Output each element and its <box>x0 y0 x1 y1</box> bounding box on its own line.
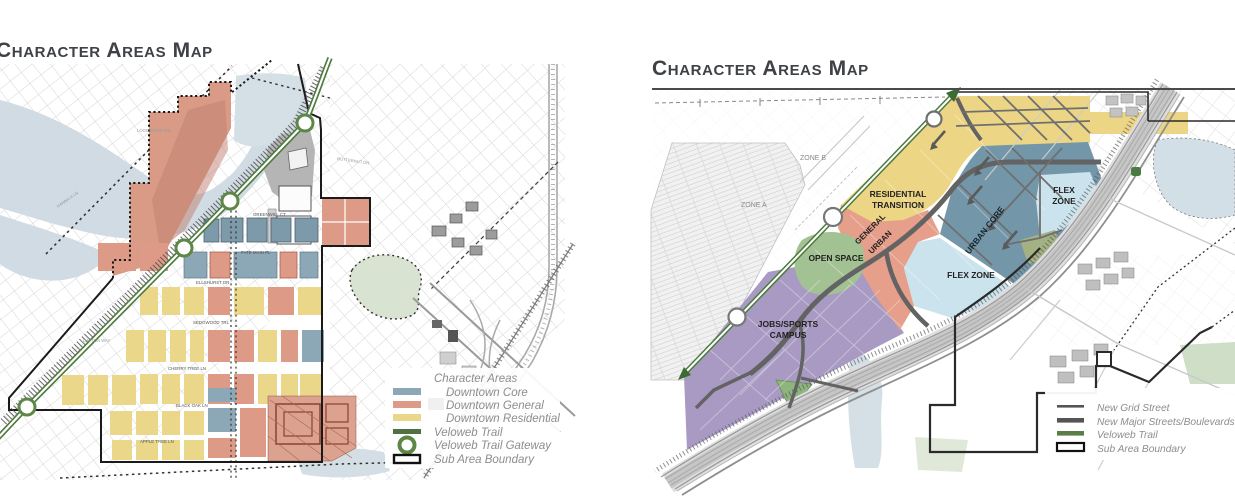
svg-text:CHERRY TREE LN: CHERRY TREE LN <box>168 366 206 371</box>
svg-text:FLEX: FLEX <box>1053 185 1075 195</box>
svg-text:RESIDENTIAL: RESIDENTIAL <box>870 189 927 199</box>
svg-text:ZONE A: ZONE A <box>741 202 767 209</box>
svg-text:ZONE B: ZONE B <box>800 155 826 162</box>
svg-text:SEDGWOOD TRL: SEDGWOOD TRL <box>193 320 230 325</box>
svg-text:APPLE TREE LN: APPLE TREE LN <box>140 439 174 444</box>
svg-text:Downtown Residential: Downtown Residential <box>446 413 560 425</box>
svg-text:Sub Area Boundary: Sub Area Boundary <box>434 454 535 466</box>
svg-text:Sub Area Boundary: Sub Area Boundary <box>1097 444 1186 455</box>
svg-text:New Major Streets/Boulevards: New Major Streets/Boulevards <box>1097 417 1235 428</box>
svg-text:Downtown General: Downtown General <box>446 400 544 412</box>
svg-text:GREENWILL CT: GREENWILL CT <box>253 212 286 217</box>
svg-text:Veloweb Trail: Veloweb Trail <box>1097 430 1158 441</box>
svg-text:Downtown Core: Downtown Core <box>446 387 528 399</box>
svg-text:CAMPUS: CAMPUS <box>770 330 807 340</box>
svg-text:New Grid Street: New Grid Street <box>1097 403 1171 414</box>
svg-text:LOOGWOOD TRL: LOOGWOOD TRL <box>137 128 172 133</box>
svg-text:JOBS/SPORTS: JOBS/SPORTS <box>758 319 819 329</box>
svg-text:DAYTON WAY: DAYTON WAY <box>83 338 111 343</box>
svg-text:Character Areas Map: Character Areas Map <box>652 57 869 80</box>
svg-text:ELLSHURST DR: ELLSHURST DR <box>196 280 229 285</box>
svg-text:Veloweb Trail: Veloweb Trail <box>434 427 503 439</box>
svg-text:Character Areas Map: Character Areas Map <box>0 39 213 62</box>
svg-text:Veloweb Trail Gateway: Veloweb Trail Gateway <box>434 440 552 452</box>
svg-text:OPEN SPACE: OPEN SPACE <box>808 253 863 263</box>
svg-text:TRANSITION: TRANSITION <box>872 200 924 210</box>
svg-text:BLACK OAK LN: BLACK OAK LN <box>176 403 208 408</box>
svg-text:ZONE: ZONE <box>1052 196 1076 206</box>
svg-text:FATE MAIN PL: FATE MAIN PL <box>241 250 271 255</box>
svg-text:FLEX ZONE: FLEX ZONE <box>947 270 995 280</box>
svg-text:Character Areas: Character Areas <box>434 373 518 385</box>
